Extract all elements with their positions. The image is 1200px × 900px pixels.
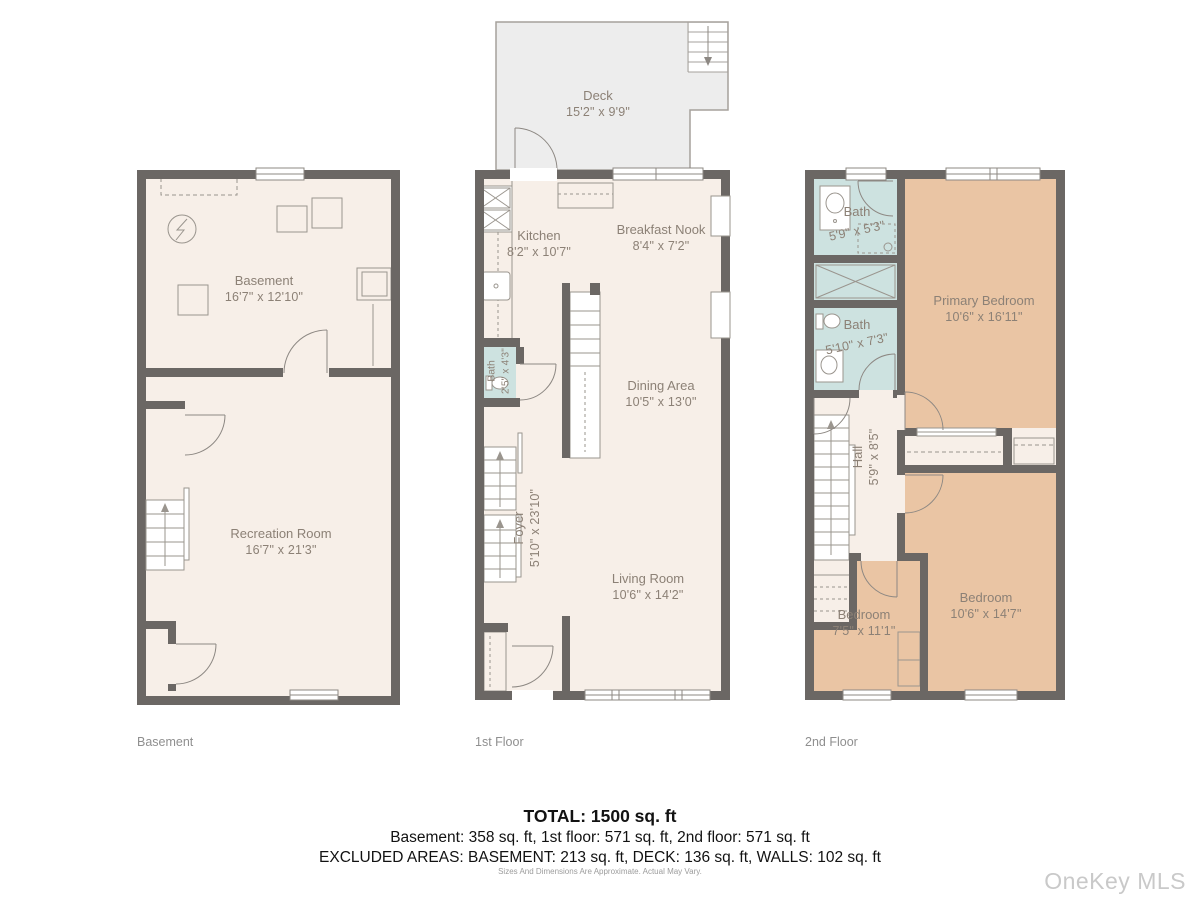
- bedroom-small-wall: [849, 553, 861, 561]
- room-label-breakfast-nook: Breakfast Nook 8'4" x 7'2": [617, 221, 706, 255]
- corridor-wall: [897, 179, 905, 395]
- rec-closet-wall: [168, 629, 176, 644]
- bath-upper-wall: [814, 255, 897, 263]
- basement-divider-wall: [329, 368, 391, 377]
- room-label-bath-first: Bath 2'5" x 4'3": [485, 348, 512, 394]
- bath-wall: [516, 347, 524, 364]
- room-label-foyer: Foyer 5'10" x 23'10": [510, 489, 544, 567]
- sink-icon: [482, 272, 510, 300]
- bedroom-divider-wall: [920, 561, 928, 691]
- total-area-text: TOTAL: 1500 sq. ft: [0, 806, 1200, 827]
- bath-wall: [475, 398, 520, 407]
- window: [290, 690, 338, 700]
- window: [613, 168, 703, 180]
- room-label-bedroom-small: Bedroom 7'5" x 11'1": [832, 606, 895, 640]
- basement-plan: [137, 168, 400, 705]
- basement-floor-fill: [146, 179, 391, 696]
- foyer-living-wall: [562, 616, 570, 691]
- room-label-primary-bedroom: Primary Bedroom 10'6" x 16'11": [933, 292, 1034, 326]
- room-label-basement: Basement 16'7" x 12'10": [225, 272, 303, 306]
- onekey-mls-watermark: OneKey MLS: [1044, 868, 1186, 895]
- corridor-wall: [897, 513, 905, 561]
- room-label-bath-upper: Bath 5'9" x 5'3": [829, 203, 886, 241]
- window: [843, 690, 891, 700]
- bath-wall: [475, 338, 520, 347]
- first-floor-plan: [475, 22, 730, 700]
- floorplan-page: { "watermark": "OneKey MLS", "disclaimer…: [0, 0, 1200, 900]
- primary-closet-wall: [905, 428, 917, 436]
- stair-core: [570, 292, 600, 458]
- area-summary: TOTAL: 1500 sq. ft Basement: 358 sq. ft,…: [0, 806, 1200, 869]
- entry-closet-wall: [484, 623, 508, 632]
- window: [256, 168, 304, 180]
- caption-first-floor: 1st Floor: [475, 735, 524, 749]
- window: [585, 690, 710, 700]
- rec-closet-wall: [168, 684, 176, 691]
- room-label-bath-lower: Bath 5'10" x 7'3": [825, 316, 889, 354]
- closet-wall: [814, 300, 897, 308]
- room-label-bedroom-large: Bedroom 10'6" x 14'7": [950, 589, 1021, 623]
- room-label-living: Living Room 10'6" x 14'2": [612, 570, 684, 604]
- floorplan-canvas: [0, 0, 1200, 900]
- window: [946, 168, 1040, 180]
- basement-divider-wall: [146, 368, 283, 377]
- closet-bottom-wall: [897, 465, 1056, 473]
- room-label-kitchen: Kitchen 8'2" x 10'7": [507, 227, 571, 261]
- window: [846, 168, 886, 180]
- bedroom-small-wall: [905, 553, 928, 561]
- room-label-hall: Hall 5'9" x 8'5": [849, 429, 883, 486]
- rec-closet-wall: [146, 621, 176, 629]
- disclaimer-text: Sizes And Dimensions Are Approximate. Ac…: [0, 867, 1200, 876]
- excluded-areas-text: EXCLUDED AREAS: BASEMENT: 213 sq. ft, DE…: [0, 849, 1200, 867]
- bath-lower-wall: [893, 390, 897, 398]
- room-label-recreation: Recreation Room 16'7" x 21'3": [230, 525, 331, 559]
- rec-alcove-wall: [146, 401, 185, 409]
- bath-lower-wall: [814, 390, 859, 398]
- front-door-opening: [512, 690, 553, 700]
- stair-core-wall: [590, 283, 600, 295]
- room-label-dining: Dining Area 10'5" x 13'0": [625, 377, 696, 411]
- caption-basement: Basement: [137, 735, 193, 749]
- room-label-deck: Deck 15'2" x 9'9": [566, 87, 630, 121]
- closet-sliding-door: [917, 428, 996, 436]
- floor-areas-text: Basement: 358 sq. ft, 1st floor: 571 sq.…: [0, 829, 1200, 847]
- caption-second-floor: 2nd Floor: [805, 735, 858, 749]
- stair-core-wall: [562, 283, 570, 458]
- basement-stairs-icon: [146, 488, 189, 570]
- deck-door-opening: [510, 168, 557, 181]
- window: [965, 690, 1017, 700]
